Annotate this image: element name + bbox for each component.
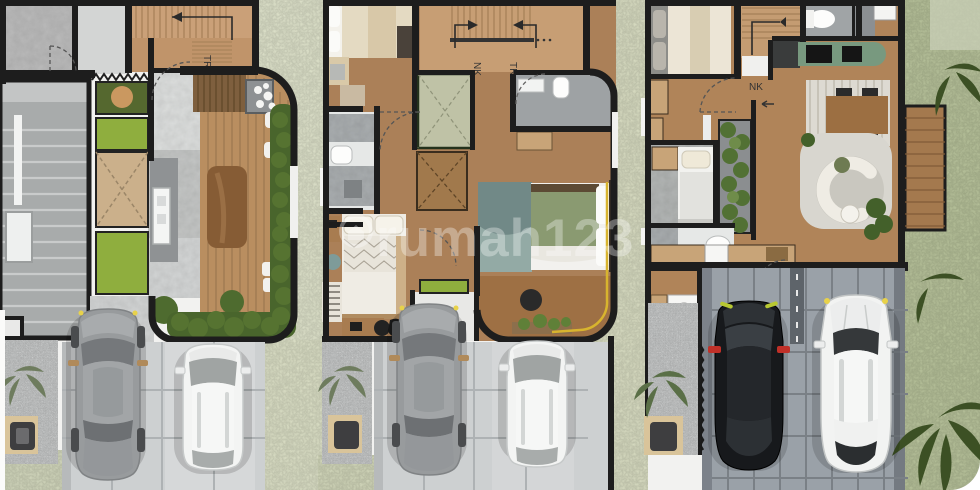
svg-text:rumah123: rumah123 (376, 209, 634, 268)
svg-text:NK: NK (749, 82, 763, 93)
